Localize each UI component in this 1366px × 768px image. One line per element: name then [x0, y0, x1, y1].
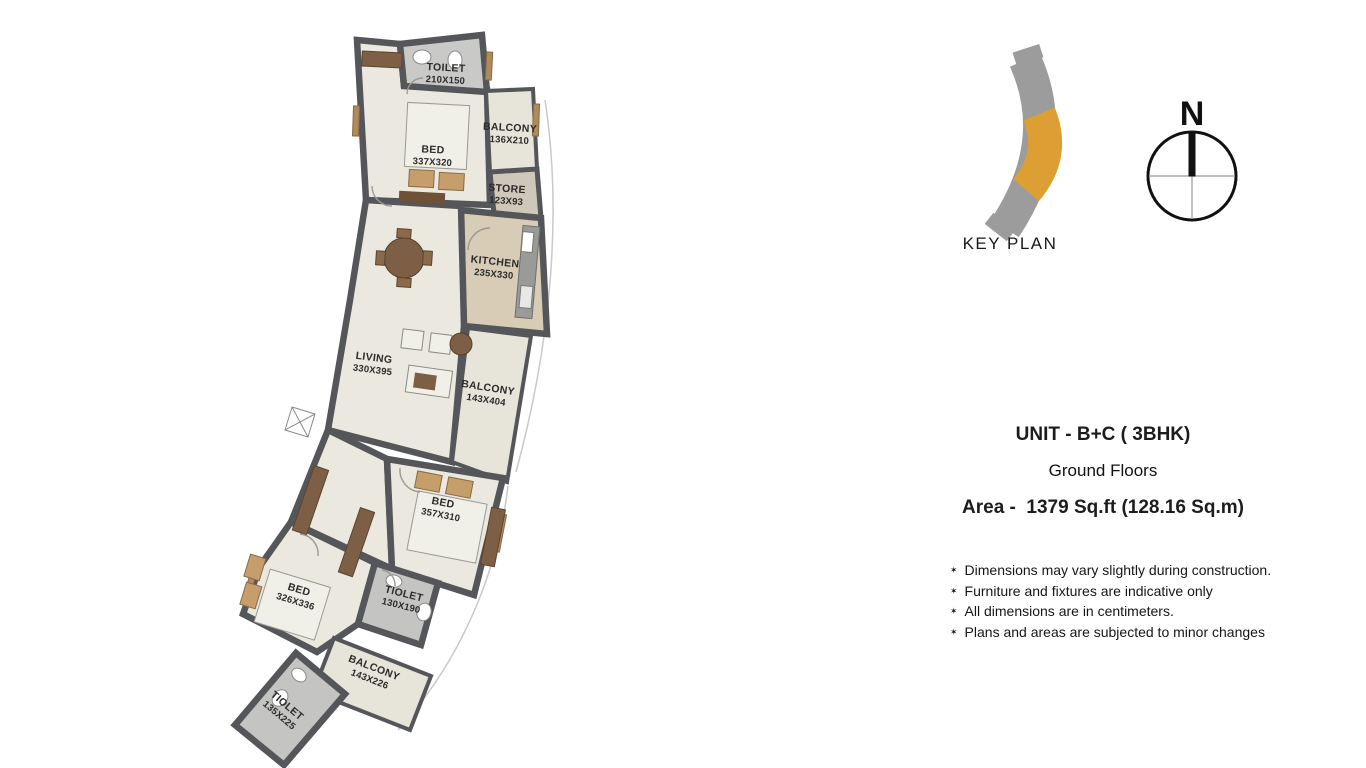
note-text: Furniture and fixtures are indicative on…: [965, 583, 1213, 599]
dining-chair: [423, 251, 433, 266]
dining-chair: [376, 251, 386, 266]
kitchen-stove: [519, 286, 533, 309]
unit-area: Area - 1379 Sq.ft (128.16 Sq.m): [925, 497, 1281, 519]
key-plan-label: KEY PLAN: [950, 234, 1070, 254]
unit-floor: Ground Floors: [925, 461, 1281, 481]
compass: N: [1140, 88, 1250, 228]
disclaimer-notes: ✶Dimensions may vary slightly during con…: [950, 560, 1320, 642]
key-plan-highlighted-unit: [1026, 114, 1045, 190]
svg-text:210X150: 210X150: [425, 74, 465, 87]
duct-shaft: [285, 407, 315, 437]
living-chair: [401, 329, 424, 350]
compass-north-needle: [1189, 134, 1196, 177]
note-line: ✶Dimensions may vary slightly during con…: [950, 560, 1320, 581]
key-plan-building: [985, 44, 1057, 241]
floor-plan: TOILET 210X150 BED 337X320 BALCONY 136X2…: [0, 0, 620, 768]
wardrobe-top: [362, 51, 403, 68]
compass-north-label: N: [1180, 95, 1205, 133]
dining-table: [384, 238, 424, 278]
note-line: ✶All dimensions are in centimeters.: [950, 601, 1320, 622]
note-text: Plans and areas are subjected to minor c…: [965, 624, 1265, 640]
star-bullet-icon: ✶: [950, 627, 958, 637]
kitchen-sink: [521, 232, 534, 253]
unit-title: UNIT - B+C ( 3BHK): [925, 424, 1281, 446]
note-text: Dimensions may vary slightly during cons…: [965, 562, 1272, 578]
living-chair: [429, 333, 452, 354]
star-bullet-icon: ✶: [950, 586, 958, 596]
note-line: ✶Plans and areas are subjected to minor …: [950, 622, 1320, 643]
living-cushion: [413, 373, 437, 391]
svg-text:337X320: 337X320: [412, 156, 452, 169]
star-bullet-icon: ✶: [950, 606, 958, 616]
dining-chair: [397, 278, 412, 288]
star-bullet-icon: ✶: [950, 565, 958, 575]
unit-info: UNIT - B+C ( 3BHK) Ground Floors Area - …: [925, 424, 1281, 519]
key-plan-graphic: [950, 40, 1070, 245]
note-text: All dimensions are in centimeters.: [965, 603, 1174, 619]
svg-text:136X210: 136X210: [489, 134, 529, 147]
bed-top-pillow: [439, 172, 465, 190]
svg-text:TOILET: TOILET: [426, 61, 466, 75]
living-pouf: [450, 333, 472, 355]
svg-text:BED: BED: [421, 143, 445, 156]
dining-chair: [397, 229, 412, 239]
bed-top-pillow: [409, 169, 435, 187]
note-line: ✶Furniture and fixtures are indicative o…: [950, 581, 1320, 602]
